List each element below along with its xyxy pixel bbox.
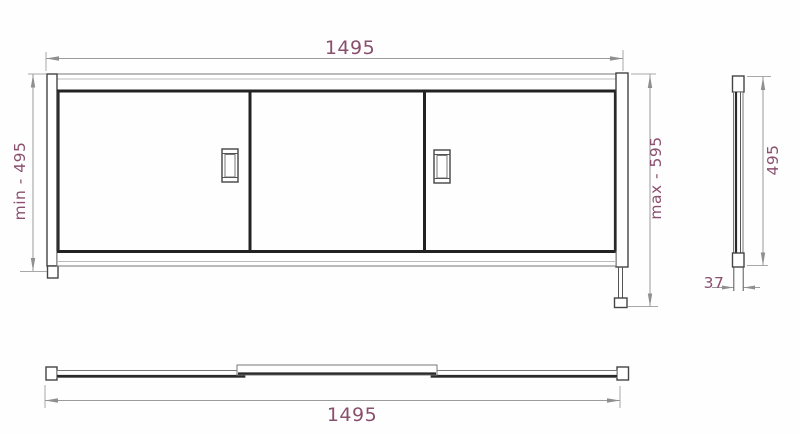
front-right-leg [615,267,628,308]
front-min-height-dimension: min - 495 [11,74,47,272]
door-handle-2 [434,150,450,183]
side-thickness-dimension: 37 [704,274,760,292]
front-right-leg-foot [615,298,628,308]
side-top-cap [733,76,745,92]
front-max-height-dimension: max - 595 [628,74,665,307]
front-bottom-rail [57,252,616,267]
bottom-width-dimension: 1495 [45,385,620,426]
front-left-rail [47,74,57,266]
technical-drawing-page: 1495 min - 495 max - 595 495 [0,0,800,434]
front-width-dimension: 1495 [46,37,623,71]
bath-screen-drawing: 1495 min - 495 max - 595 495 [0,0,800,434]
front-min-height-label: min - 495 [11,142,29,221]
side-height-dimension: 495 [747,77,782,266]
side-height-label: 495 [764,144,782,175]
front-left-foot [48,266,59,278]
front-width-label: 1495 [325,37,375,59]
side-bottom-cap [733,253,745,267]
front-right-rail [616,73,628,267]
bottom-view [46,365,629,380]
front-top-rail [57,74,616,91]
plan-right-cap [617,367,629,380]
side-thickness-label: 37 [704,274,725,292]
front-view [47,73,628,308]
bottom-width-label: 1495 [327,404,377,426]
side-view [733,76,745,291]
front-max-height-label: max - 595 [647,136,665,219]
door-handle-1 [222,149,238,182]
plan-left-cap [46,367,57,380]
